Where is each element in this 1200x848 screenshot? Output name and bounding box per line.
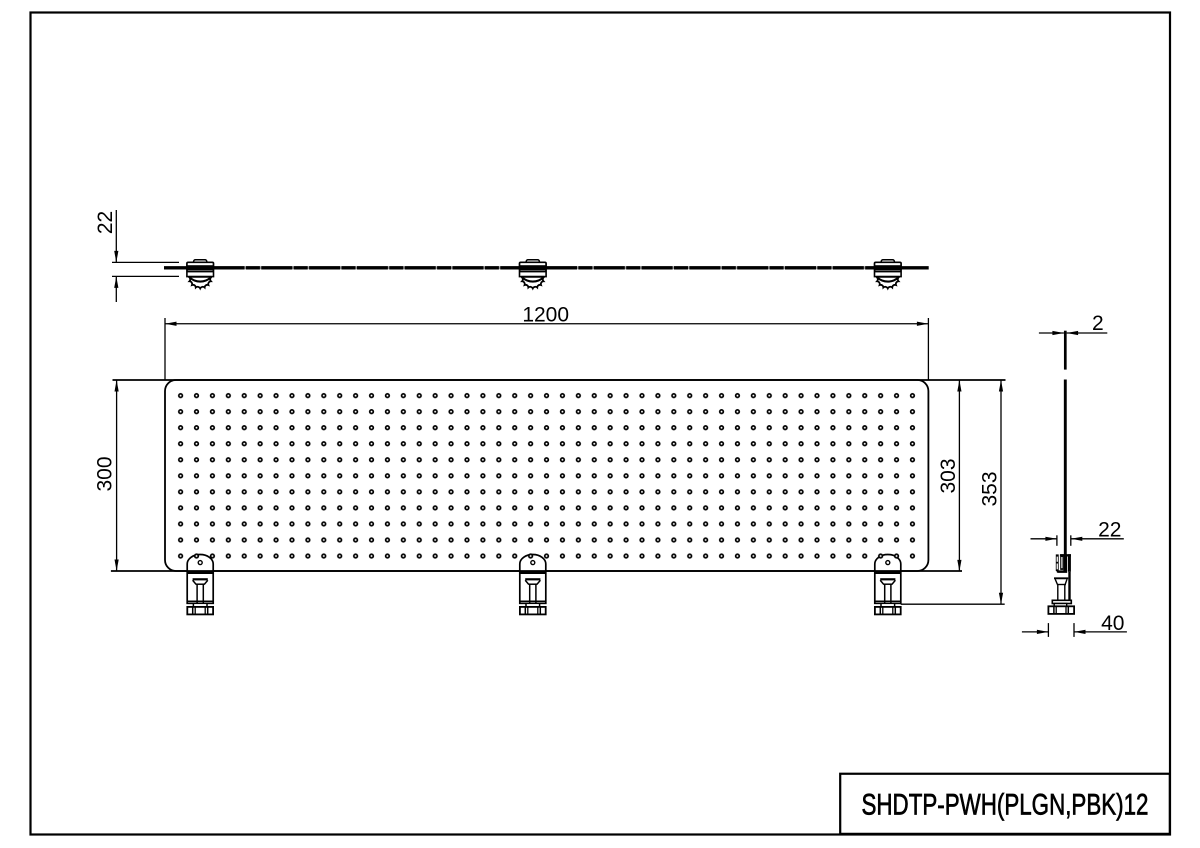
svg-text:22: 22: [1098, 519, 1121, 542]
svg-text:353: 353: [979, 471, 1002, 506]
svg-text:300: 300: [94, 456, 117, 491]
svg-text:303: 303: [937, 458, 960, 493]
svg-text:SHDTP-PWH(PLGN,PBK)12: SHDTP-PWH(PLGN,PBK)12: [862, 789, 1149, 822]
svg-text:1200: 1200: [522, 304, 569, 327]
svg-text:2: 2: [1092, 312, 1104, 335]
svg-text:40: 40: [1101, 612, 1124, 635]
svg-text:22: 22: [94, 211, 117, 234]
